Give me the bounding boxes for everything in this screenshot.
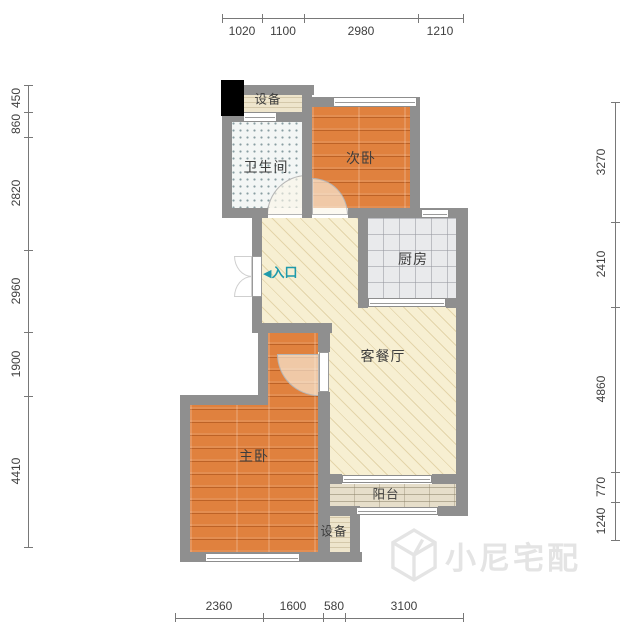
- wall: [180, 395, 190, 562]
- wall: [252, 208, 262, 256]
- dim-label: 860: [9, 114, 23, 134]
- dim-tick: [345, 613, 346, 622]
- room-label-equipment-top: 设备: [254, 89, 281, 108]
- dim-tick: [611, 502, 620, 503]
- dim-tick: [611, 307, 620, 308]
- sliding-door-balcony: [342, 475, 432, 483]
- sliding-door-kitchen: [368, 298, 446, 307]
- room-label-living-dining: 客餐厅: [361, 346, 406, 366]
- wall: [358, 218, 368, 308]
- room-label-balcony: 阳台: [372, 484, 399, 503]
- column-shaft: [221, 80, 244, 116]
- dim-tick: [24, 332, 33, 333]
- dim-tick: [304, 14, 305, 23]
- dim-label: 450: [9, 88, 23, 108]
- dim-label: 1210: [427, 24, 454, 38]
- dim-line-bottom: [175, 618, 463, 619]
- room-label-kitchen: 厨房: [398, 249, 428, 269]
- dim-label: 3270: [594, 149, 608, 176]
- dim-label: 1600: [280, 599, 307, 613]
- window: [421, 209, 449, 218]
- dim-tick: [611, 102, 620, 103]
- dim-line-top: [222, 18, 463, 19]
- wall: [180, 395, 268, 405]
- dim-tick: [611, 540, 620, 541]
- dim-label: 580: [324, 599, 344, 613]
- entry-door-swing-arc: [234, 276, 252, 297]
- dim-tick: [222, 14, 223, 23]
- wall: [318, 333, 330, 352]
- dim-tick: [463, 14, 464, 23]
- wall: [258, 323, 268, 405]
- room-label-secondary-bedroom: 次卧: [346, 148, 376, 168]
- room-label-equipment-bottom: 设备: [320, 521, 347, 540]
- dim-label: 770: [594, 477, 608, 497]
- dim-label: 2820: [9, 180, 23, 207]
- window: [243, 112, 277, 122]
- dim-tick: [24, 547, 33, 548]
- entrance-marker: ◀入口: [263, 262, 297, 281]
- dim-label: 1900: [9, 351, 23, 378]
- dim-tick: [323, 613, 324, 622]
- window: [333, 97, 417, 107]
- wall: [258, 323, 332, 333]
- floorplan-canvas: 1020 1100 2980 1210 2360 1600 580 3100 4…: [0, 0, 640, 640]
- wall: [456, 208, 468, 516]
- dim-label: 1240: [594, 508, 608, 535]
- wall: [330, 474, 342, 484]
- room-label-master-bedroom: 主卧: [239, 446, 269, 466]
- dim-tick: [418, 14, 419, 23]
- room-label-bathroom: 卫生间: [244, 157, 289, 177]
- dim-label: 2360: [206, 599, 233, 613]
- dim-label: 4860: [594, 376, 608, 403]
- dim-tick: [24, 137, 33, 138]
- dim-tick: [24, 396, 33, 397]
- dim-line-left: [28, 85, 29, 547]
- wall: [348, 208, 468, 218]
- dim-label: 2960: [9, 278, 23, 305]
- dim-label: 3100: [391, 599, 418, 613]
- dim-label: 1020: [229, 24, 256, 38]
- dim-tick: [175, 613, 176, 622]
- entry-door: [252, 256, 262, 297]
- dim-label: 2410: [594, 251, 608, 278]
- entrance-label: 入口: [271, 265, 297, 280]
- wall: [302, 85, 312, 218]
- dim-line-right: [615, 102, 616, 540]
- watermark-text: 小尼宅配: [445, 533, 581, 578]
- watermark: 小尼宅配: [391, 528, 581, 582]
- dim-label: 2980: [348, 24, 375, 38]
- window: [205, 553, 300, 562]
- dim-label: 4410: [9, 458, 23, 485]
- dim-tick: [24, 85, 33, 86]
- master-bedroom-door: [319, 352, 329, 392]
- dim-tick: [611, 472, 620, 473]
- room-master-bedroom-floor: [190, 405, 268, 552]
- dim-tick: [24, 112, 33, 113]
- entry-door-swing-arc: [234, 256, 252, 277]
- watermark-logo-icon: [391, 528, 437, 582]
- dim-tick: [463, 613, 464, 622]
- window: [356, 507, 438, 515]
- wall: [432, 474, 458, 484]
- dim-label: 1100: [270, 24, 296, 38]
- dim-tick: [24, 250, 33, 251]
- dim-tick: [263, 613, 264, 622]
- wall: [410, 97, 420, 218]
- dim-tick: [262, 14, 263, 23]
- dim-tick: [611, 222, 620, 223]
